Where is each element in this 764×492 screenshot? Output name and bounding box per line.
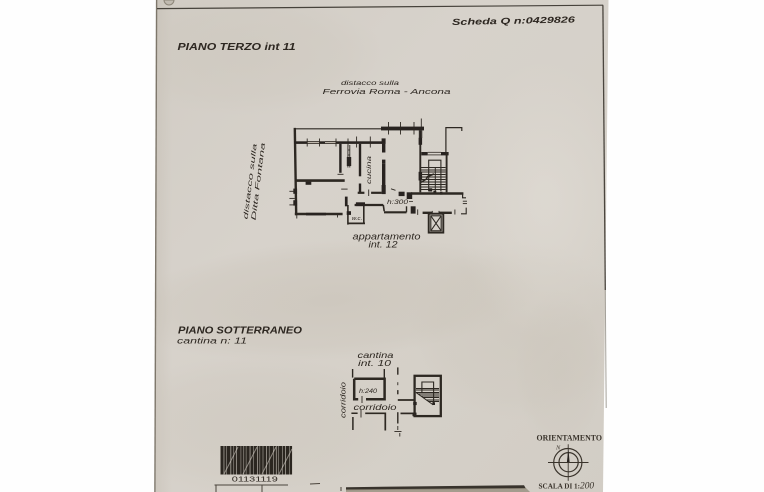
svg-text:h:300: h:300 <box>387 199 409 206</box>
svg-text:cucina: cucina <box>366 155 373 184</box>
svg-text:distacco sulla: distacco sulla <box>341 80 399 87</box>
svg-text:SCALA DI 1:200: SCALA DI 1:200 <box>539 482 595 492</box>
svg-text:Ferrovia Roma - Ancona: Ferrovia Roma - Ancona <box>323 87 451 96</box>
svg-text:int. 12: int. 12 <box>369 240 398 250</box>
svg-text:N: N <box>555 445 561 452</box>
svg-text:corridoio: corridoio <box>341 382 348 418</box>
svg-text:int. 10: int. 10 <box>358 358 391 368</box>
svg-text:w.c.: w.c. <box>352 216 363 222</box>
svg-text:ORIENTAMENTO: ORIENTAMENTO <box>537 434 603 443</box>
svg-text:corridoio: corridoio <box>354 403 398 412</box>
svg-text:01131119: 01131119 <box>232 475 278 484</box>
svg-text:cantina n: 11: cantina n: 11 <box>177 337 247 346</box>
svg-text:PIANO SOTTERRANEO: PIANO SOTTERRANEO <box>178 326 302 337</box>
svg-text:h:240: h:240 <box>359 388 378 395</box>
svg-text:PIANO TERZO int 11: PIANO TERZO int 11 <box>178 42 296 53</box>
